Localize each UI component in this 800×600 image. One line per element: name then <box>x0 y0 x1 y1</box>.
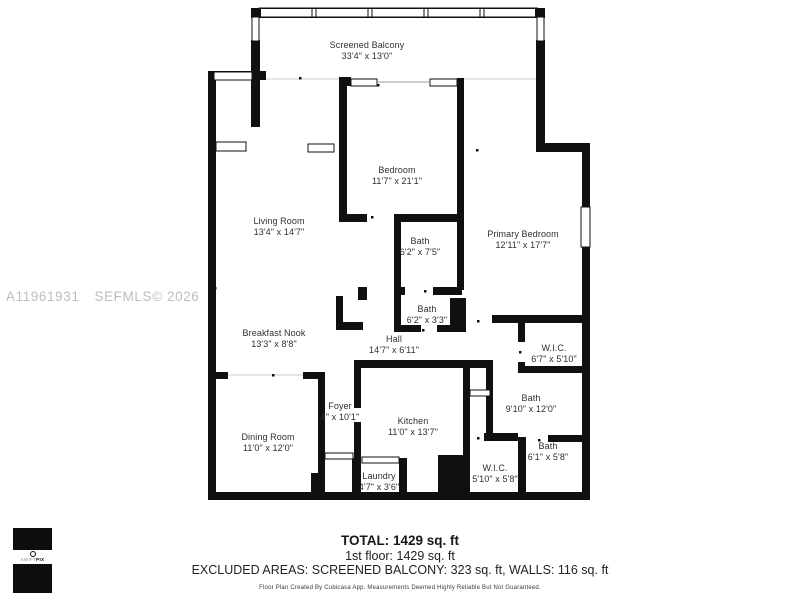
room-label-dining-room: Dining Room11'0" x 12'0" <box>241 432 294 453</box>
room-name: Bath <box>506 393 557 404</box>
room-name: Laundry <box>359 471 399 482</box>
listing-id: A11961931 <box>6 289 79 304</box>
room-name: Bath <box>407 304 447 315</box>
room-name: Screened Balcony <box>330 40 405 51</box>
room-label-screened-balcony: Screened Balcony33'4" x 13'0" <box>330 40 405 61</box>
room-dims: 12'11" x 17'7" <box>487 240 559 251</box>
room-name: Foyer <box>321 401 360 412</box>
room-dims: 14'7" x 6'11" <box>369 345 419 356</box>
area-summary: TOTAL: 1429 sq. ft 1st floor: 1429 sq. f… <box>0 533 800 591</box>
room-label-laundry: Laundry4'7" x 3'6" <box>359 471 399 492</box>
room-label-bath-2: Bath6'2" x 3'3" <box>407 304 447 325</box>
room-dims: 11'0" x 12'0" <box>241 443 294 454</box>
room-name: Bedroom <box>372 165 422 176</box>
first-floor-area: 1st floor: 1429 sq. ft <box>0 549 800 563</box>
mls-watermark: A11961931 SEFMLS© 2026 <box>6 289 199 304</box>
logo-brand-light: SWIFT <box>21 557 37 562</box>
room-dims: 13'4" x 14'7" <box>253 227 304 238</box>
floorplan-page: Screened Balcony33'4" x 13'0" Bedroom11'… <box>0 0 800 600</box>
room-name: Primary Bedroom <box>487 229 559 240</box>
room-dims: 4'7" x 3'6" <box>359 482 399 493</box>
room-label-bedroom: Bedroom11'7" x 21'1" <box>372 165 422 186</box>
room-name: Bath <box>400 236 440 247</box>
logo-brand-text: SWIFTPIX <box>21 558 45 563</box>
mls-copyright: SEFMLS© 2026 <box>94 289 199 304</box>
logo-bottom-block <box>13 564 52 593</box>
room-dims: 6'2" x 3'3" <box>407 315 447 326</box>
room-dims: 11'7" x 21'1" <box>372 176 422 187</box>
room-label-hall: Hall14'7" x 6'11" <box>369 334 419 355</box>
room-label-kitchen: Kitchen11'0" x 13'7" <box>388 416 438 437</box>
total-area: TOTAL: 1429 sq. ft <box>0 533 800 548</box>
room-dims: 5'10" x 5'8" <box>472 474 518 485</box>
disclaimer-text: Floor Plan Created By Cubicasa App. Meas… <box>0 585 800 591</box>
room-label-primary-bedroom: Primary Bedroom12'11" x 17'7" <box>487 229 559 250</box>
logo-brand-bold: PIX <box>36 557 44 562</box>
room-dims: 6'2" x 7'5" <box>400 247 440 258</box>
room-dims: 13'3" x 8'8" <box>243 339 306 350</box>
room-dims: 4" x 10'1" <box>321 412 360 423</box>
room-dims: 6'7" x 5'10" <box>531 354 577 365</box>
room-label-wic-2: W.I.C.5'10" x 5'8" <box>472 463 518 484</box>
logo-top-block <box>13 528 52 550</box>
room-label-wic-1: W.I.C.6'7" x 5'10" <box>531 343 577 364</box>
swiftpix-logo: SWIFTPIX <box>13 528 52 593</box>
room-name: Breakfast Nook <box>243 328 306 339</box>
room-label-living-room: Living Room13'4" x 14'7" <box>253 216 304 237</box>
room-dims: 9'10" x 12'0" <box>506 404 557 415</box>
room-label-bath-1: Bath6'2" x 7'5" <box>400 236 440 257</box>
room-name: W.I.C. <box>472 463 518 474</box>
room-label-bath-3: Bath9'10" x 12'0" <box>506 393 557 414</box>
room-name: Kitchen <box>388 416 438 427</box>
room-label-breakfast-nook: Breakfast Nook13'3" x 8'8" <box>243 328 306 349</box>
room-name: Bath <box>528 441 568 452</box>
room-name: W.I.C. <box>531 343 577 354</box>
excluded-areas: EXCLUDED AREAS: SCREENED BALCONY: 323 sq… <box>0 563 800 577</box>
room-name: Hall <box>369 334 419 345</box>
room-dims: 33'4" x 13'0" <box>330 51 405 62</box>
room-name: Living Room <box>253 216 304 227</box>
room-name: Dining Room <box>241 432 294 443</box>
room-dims: 11'0" x 13'7" <box>388 427 438 438</box>
room-dims: 6'1" x 5'8" <box>528 452 568 463</box>
logo-band: SWIFTPIX <box>13 550 52 564</box>
room-label-bath-4: Bath6'1" x 5'8" <box>528 441 568 462</box>
room-label-foyer: Foyer4" x 10'1" <box>321 401 360 422</box>
